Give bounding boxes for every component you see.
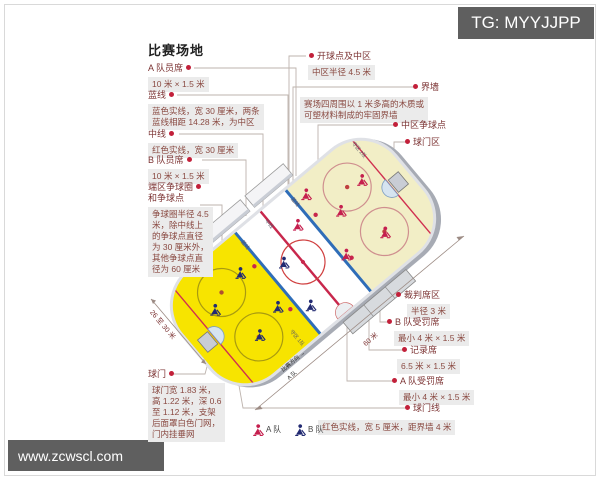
- label-goal-line: 球门线: [402, 403, 440, 414]
- bullet: [396, 292, 401, 297]
- team-b-player-icon: [294, 423, 306, 436]
- infographic-page: 蓝线 中线 蓝线 守区 1队 守区 2队 26 至 30 米 60 米 比赛方向…: [0, 0, 600, 480]
- legend-team-a-label: A 队: [266, 424, 281, 435]
- tg-watermark: TG: MYYJJPP: [458, 7, 594, 39]
- legend-team-b-label: B 队: [308, 424, 324, 435]
- bullet: [405, 405, 410, 410]
- legend-team-a: A 队: [252, 423, 281, 436]
- bullet: [309, 53, 314, 58]
- team-a-player-icon: [252, 423, 264, 436]
- rink-diagram: 蓝线 中线 蓝线 守区 1队 守区 2队 26 至 30 米 60 米 比赛方向…: [0, 0, 600, 480]
- label-blue-line: 蓝线 蓝色实线，宽 30 厘米，两条 蓝线相距 14.28 米，为中区: [148, 90, 264, 130]
- bullet: [187, 157, 192, 162]
- bullet: [402, 347, 407, 352]
- label-goal-area: 球门区: [402, 137, 440, 148]
- dim-length-text: 60 米: [361, 330, 380, 348]
- label-team-b-penalty-bench: B 队受罚席 最小 4 米 × 1.5 米: [384, 317, 469, 346]
- bullet: [169, 371, 174, 376]
- label-team-a-penalty-bench: A 队受罚席 最小 4 米 × 1.5 米: [389, 376, 474, 405]
- bullet: [405, 139, 410, 144]
- label-team-a-bench: A 队员席 10 米 × 1.5 米: [148, 63, 209, 92]
- bullet: [169, 92, 174, 97]
- label-goal-line-desc: 红色实线，宽 5 厘米，距界墙 4 米: [318, 420, 455, 435]
- label-boards: 界墙: [410, 82, 439, 93]
- label-scorer-bench: 记录席 6.5 米 × 1.5 米: [399, 345, 460, 374]
- bullet: [186, 65, 191, 70]
- bullet: [196, 184, 201, 189]
- bullet: [413, 84, 418, 89]
- label-referee-crease: 裁判席区 半径 3 米: [393, 290, 450, 319]
- bullet: [392, 378, 397, 383]
- label-team-b-bench: B 队员席 10 米 × 1.5 米: [148, 155, 209, 184]
- page-title: 比赛场地: [148, 40, 204, 59]
- label-center-line: 中线 红色实线，宽 30 厘米: [148, 129, 238, 158]
- bullet: [393, 122, 398, 127]
- legend-team-b: B 队: [294, 423, 324, 436]
- label-endzone-faceoff: 端区争球圈 和争球点 争球圈半径 4.5 米，除中线上 的争球点直径 为 30 …: [148, 182, 228, 277]
- label-neutral-faceoff-spot: 中区争球点: [390, 120, 446, 131]
- label-goal: 球门 球门宽 1.83 米， 高 1.22 米，深 0.6 至 1.12 米，支…: [148, 369, 225, 442]
- bullet: [387, 319, 392, 324]
- site-watermark: www.zcwscl.com: [8, 440, 164, 471]
- label-faceoff-spot-midzone: 开球点及中区 中区半径 4.5 米: [306, 51, 375, 80]
- bullet: [169, 131, 174, 136]
